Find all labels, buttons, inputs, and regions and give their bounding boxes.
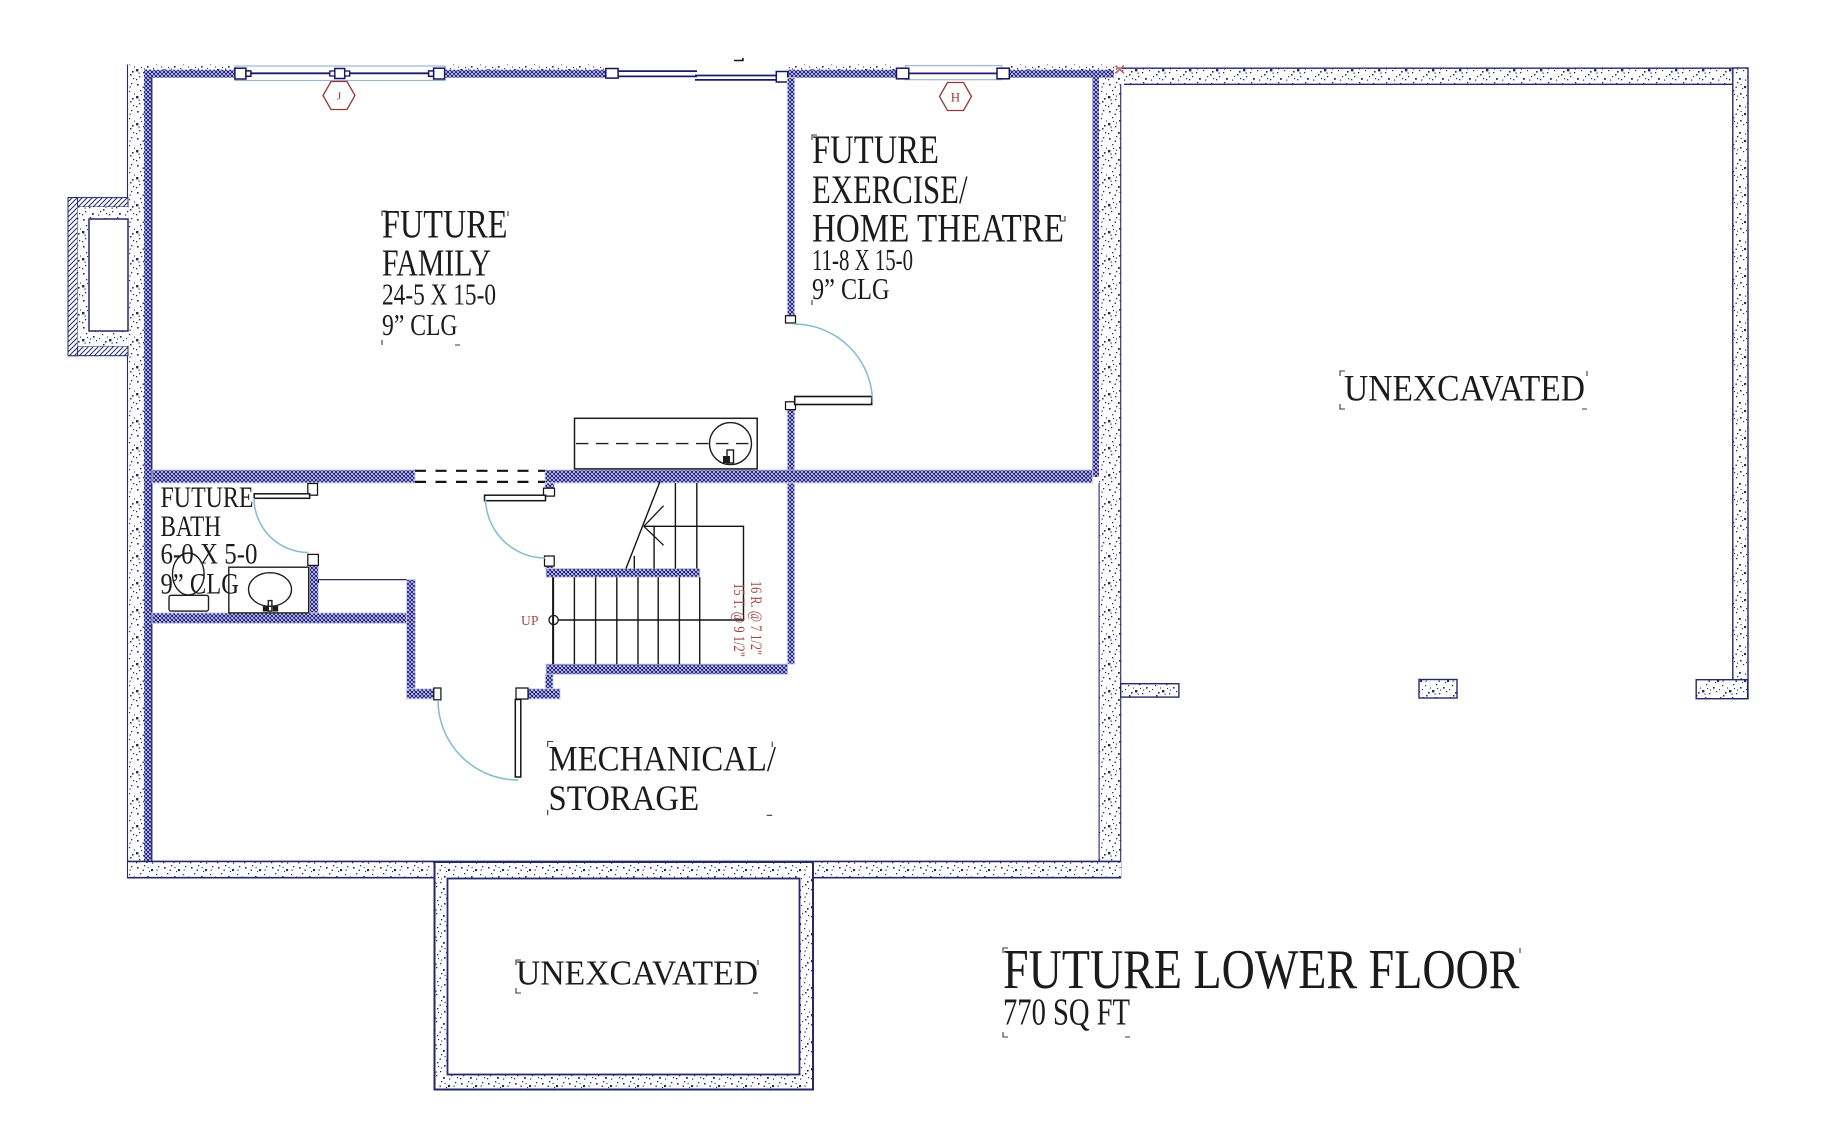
svg-text:H: H <box>951 90 960 105</box>
svg-text:15 T. @ 9 1/2": 15 T. @ 9 1/2" <box>730 583 747 657</box>
svg-text:J: J <box>337 91 342 103</box>
svg-text:6-0 X 5-0: 6-0 X 5-0 <box>161 539 258 571</box>
svg-text:770 SQ FT: 770 SQ FT <box>1003 992 1130 1034</box>
svg-text:FUTURE: FUTURE <box>382 203 508 247</box>
svg-text:FUTURE: FUTURE <box>812 128 939 172</box>
svg-text:9” CLG: 9” CLG <box>161 569 240 601</box>
svg-text:STORAGE: STORAGE <box>549 778 700 818</box>
svg-text:UP: UP <box>521 613 539 628</box>
svg-text:EXERCISE/: EXERCISE/ <box>812 168 968 212</box>
svg-text:9” CLG: 9” CLG <box>812 271 890 306</box>
svg-text:MECHANICAL/: MECHANICAL/ <box>549 739 777 779</box>
svg-text:UNEXCAVATED: UNEXCAVATED <box>1344 369 1585 410</box>
svg-text:16 R. @ 7 1/2": 16 R. @ 7 1/2" <box>747 581 764 655</box>
svg-text:UNEXCAVATED: UNEXCAVATED <box>516 954 758 993</box>
svg-text:9” CLG: 9” CLG <box>382 307 458 342</box>
